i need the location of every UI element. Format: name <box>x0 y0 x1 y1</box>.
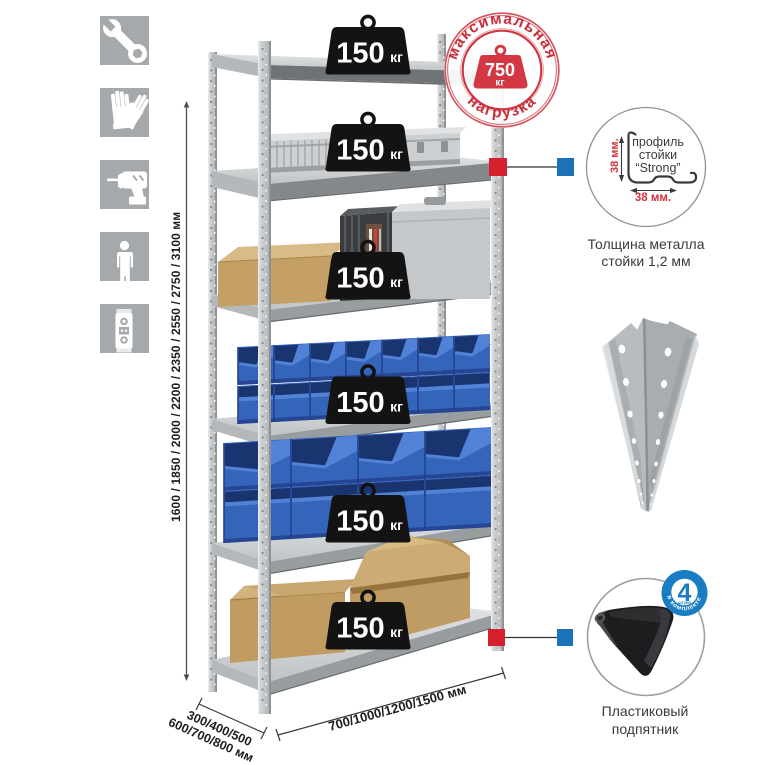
svg-text:профиль: профиль <box>632 135 684 149</box>
svg-text:“Strong”: “Strong” <box>635 161 680 175</box>
svg-text:штуки: штуки <box>678 600 691 605</box>
svg-text:кг: кг <box>390 399 403 415</box>
svg-text:кг: кг <box>390 517 403 533</box>
svg-text:38 мм.: 38 мм. <box>635 192 671 204</box>
svg-text:кг: кг <box>390 274 403 290</box>
svg-text:38 мм.: 38 мм. <box>609 138 621 173</box>
svg-text:кг: кг <box>390 49 403 65</box>
svg-text:150: 150 <box>336 38 384 70</box>
svg-text:кг: кг <box>390 146 403 162</box>
svg-text:стойки: стойки <box>639 148 677 162</box>
svg-text:150: 150 <box>336 506 384 538</box>
svg-text:700/1000/1200/1500 мм: 700/1000/1200/1500 мм <box>327 682 468 734</box>
svg-text:150: 150 <box>336 613 384 645</box>
svg-text:1600 / 1850 / 2000 / 2200 / 23: 1600 / 1850 / 2000 / 2200 / 2350 / 2550 … <box>169 212 183 522</box>
svg-text:кг: кг <box>390 624 403 640</box>
svg-text:150: 150 <box>336 135 384 167</box>
svg-text:Толщина металла: Толщина металла <box>588 236 705 252</box>
svg-text:стойки 1,2 мм: стойки 1,2 мм <box>601 253 690 269</box>
svg-text:подпятник: подпятник <box>612 721 679 737</box>
svg-text:150: 150 <box>336 263 384 295</box>
svg-text:Пластиковый: Пластиковый <box>602 703 689 719</box>
svg-text:150: 150 <box>336 387 384 419</box>
svg-text:кг: кг <box>495 78 504 89</box>
